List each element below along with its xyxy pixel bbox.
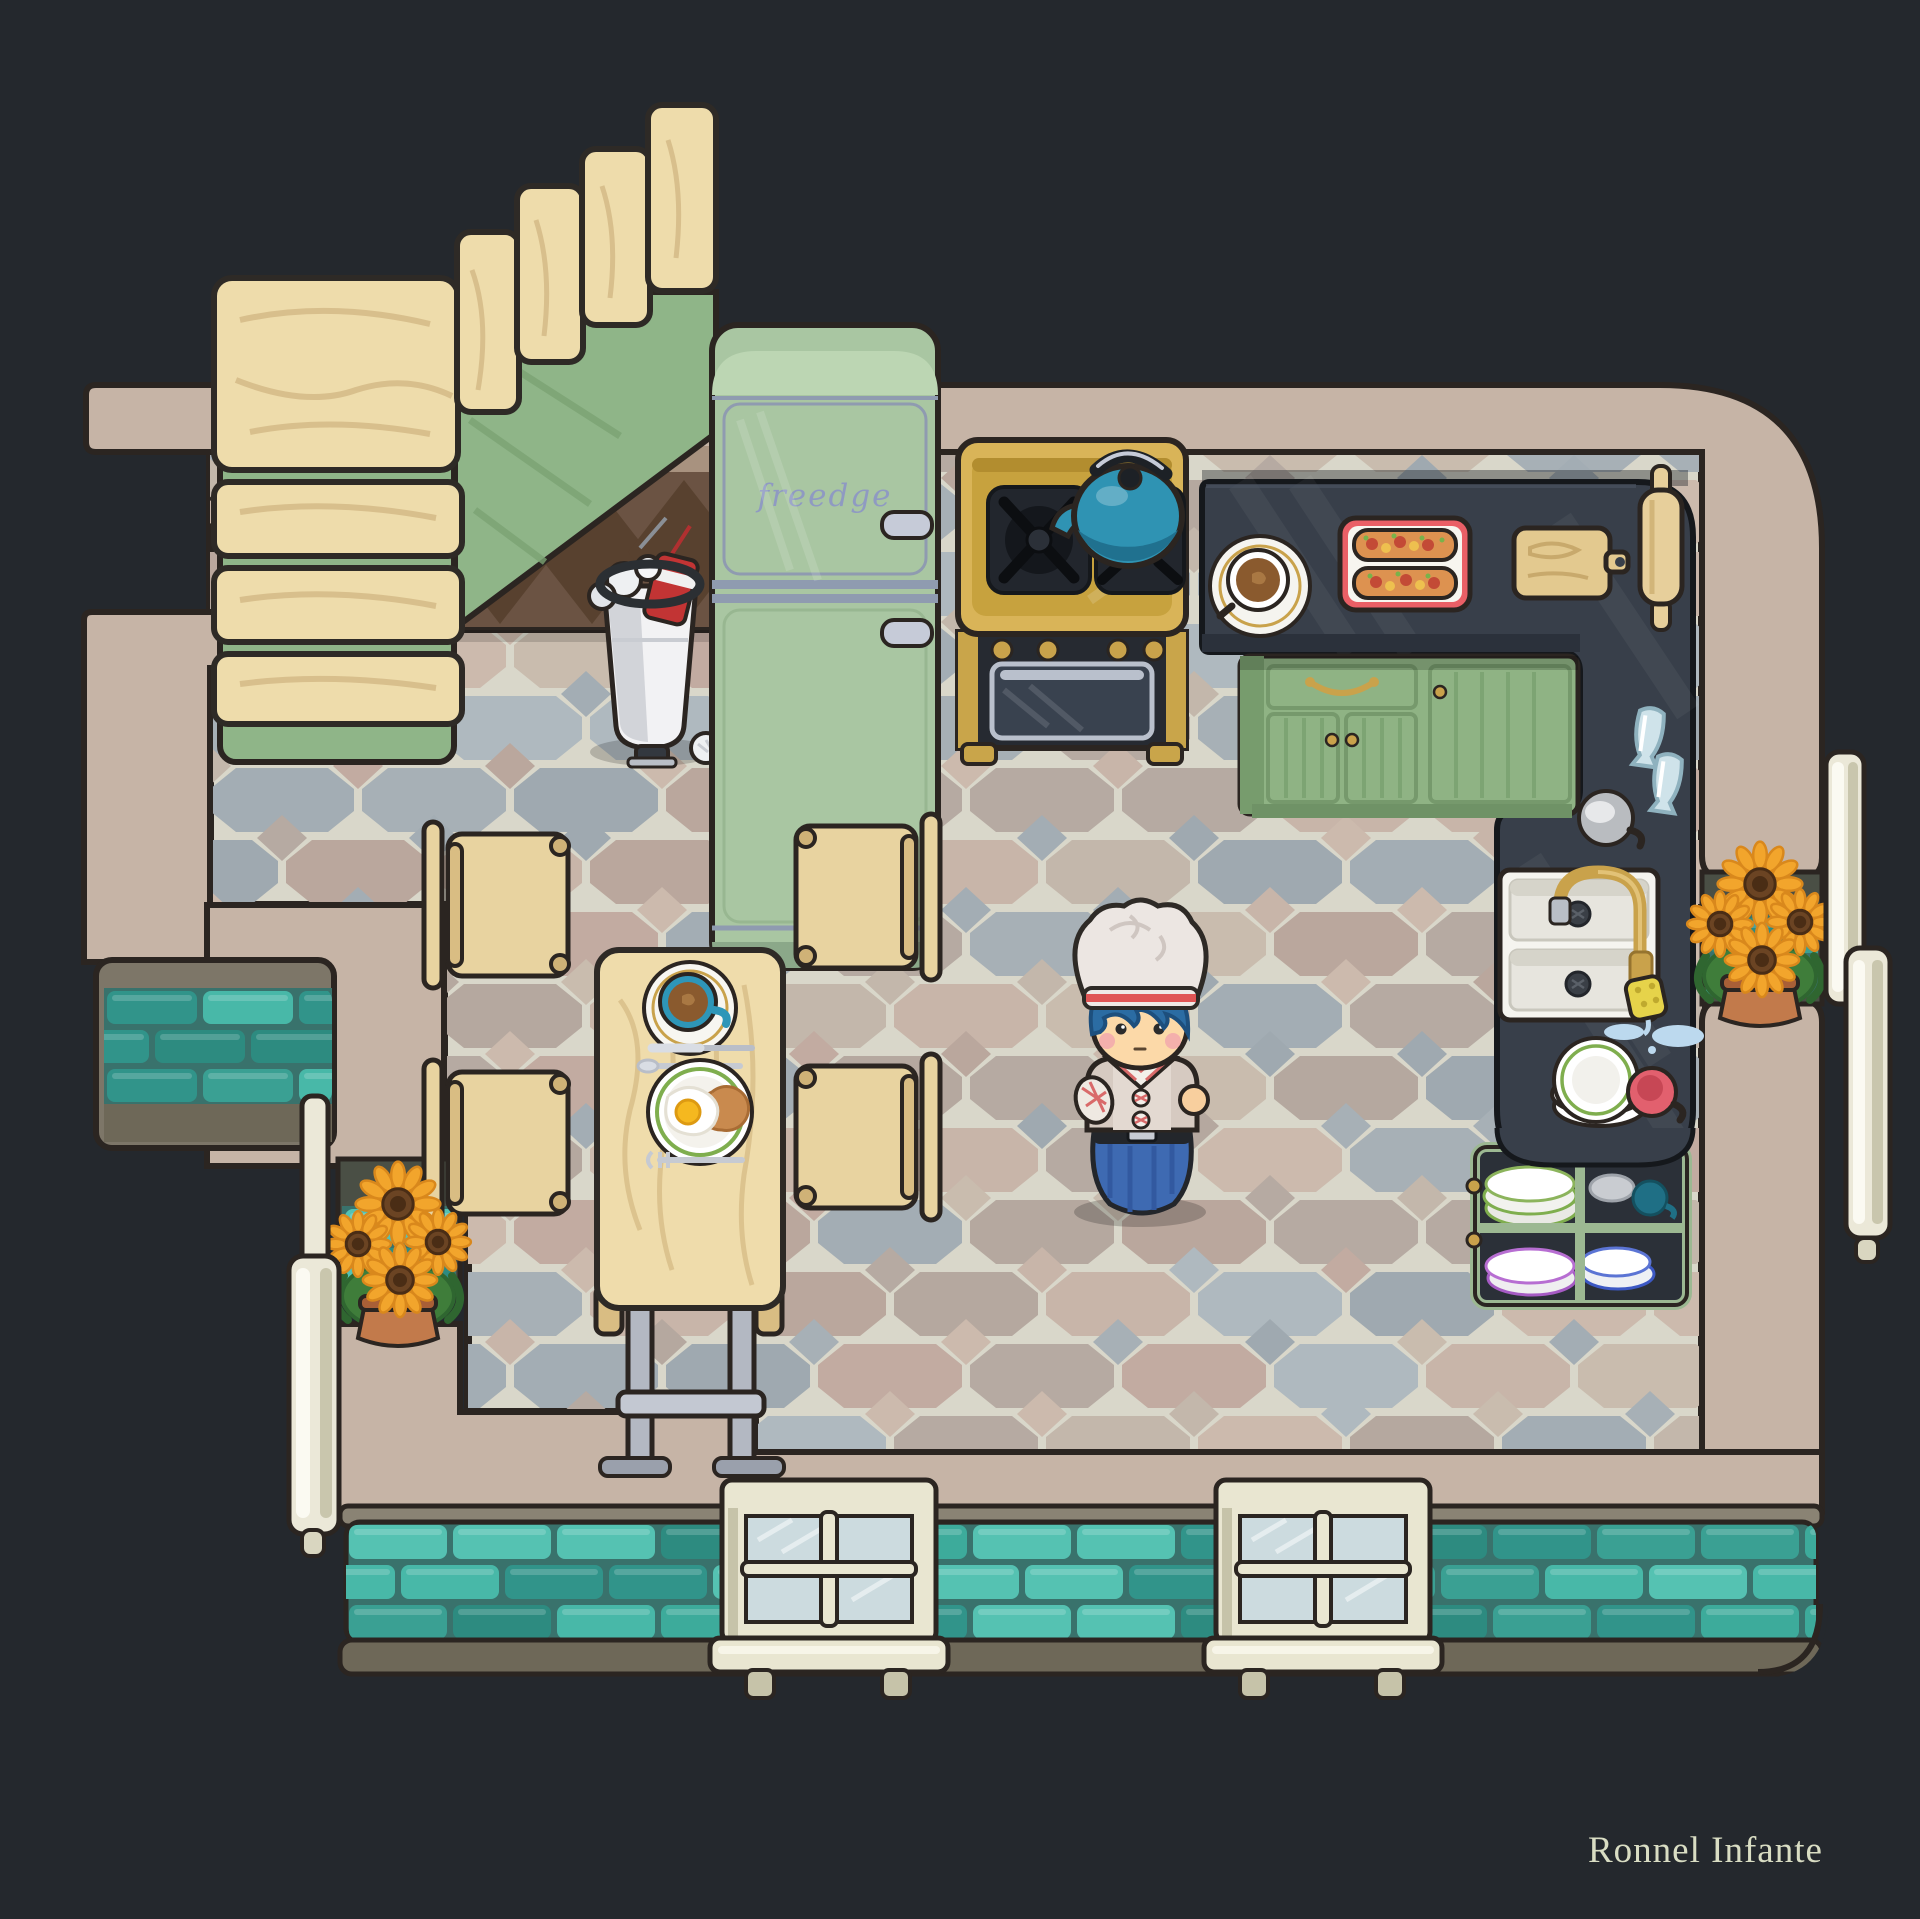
wall-right-lower [1702, 1000, 1822, 1455]
artist-signature: Ronnel Infante [1588, 1830, 1823, 1871]
chef-hat [1075, 900, 1206, 1008]
kitchen-scene: freedge [0, 0, 1920, 1919]
dining-table[interactable] [597, 950, 783, 1308]
dining-chair-right-bottom[interactable] [796, 1054, 940, 1220]
cutting-board[interactable] [1514, 528, 1628, 598]
breakfast-plate[interactable] [648, 1060, 752, 1164]
window-right [1204, 1480, 1442, 1698]
fridge-brand-label: freedge [755, 478, 892, 514]
window-left [710, 1480, 948, 1698]
chef-hand [1180, 1086, 1208, 1114]
door-right-lower[interactable] [1846, 948, 1890, 1262]
coffee-cup-counter[interactable] [1210, 536, 1310, 636]
dish-shelf[interactable] [1467, 1128, 1693, 1305]
stove-oven[interactable] [958, 440, 1186, 764]
sink[interactable] [1500, 870, 1668, 1034]
dining-chair-right-top[interactable] [796, 814, 940, 980]
dining-chair-left-top[interactable] [424, 822, 569, 988]
dining-chair-left-bottom[interactable] [424, 1060, 569, 1226]
green-cabinet[interactable] [1240, 656, 1578, 818]
sandwich-tray[interactable] [1340, 518, 1470, 610]
stair-landing [214, 278, 458, 470]
table-coffee[interactable] [644, 962, 736, 1054]
